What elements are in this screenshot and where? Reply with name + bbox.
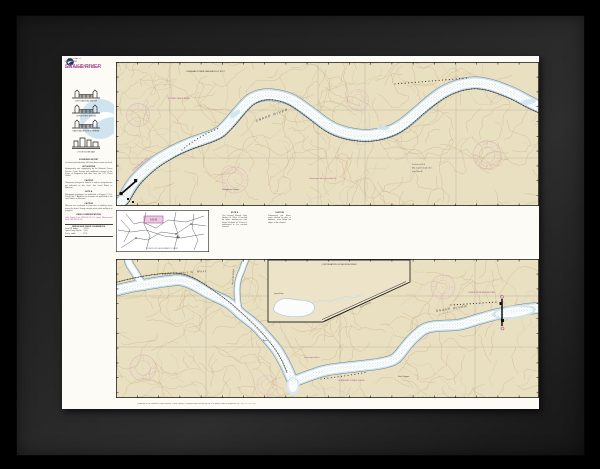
dike-label: Submerged dikes (see Note B) <box>309 177 337 180</box>
index-map-note: LOCATION OF LAKE HERBERT G. WEST <box>146 247 178 250</box>
note-body: Navigation regulations are published in … <box>65 194 112 201</box>
production-note: Produced at the National Ocean Service, … <box>137 403 337 405</box>
note-block: RADIO COMMUNICATIONS Little Goose Lock V… <box>65 214 113 221</box>
clearance-table: BRIDGE AND CABLE CLEARANCES Joso RR brid… <box>65 224 113 238</box>
note-body: at normal pool elevation 540 feet above … <box>65 162 112 164</box>
diagram-caption: LYONS FERRY BRIDGE <box>76 116 97 118</box>
place-label: Ayer <box>263 339 267 342</box>
state-label: WASHINGTON <box>65 61 77 63</box>
panel-bottom-map: CONTINUATION OF PALOUSE RIVER Lyons Ferr… <box>116 259 539 398</box>
ferry-label: Lyons Ferry <box>274 293 284 295</box>
chart-paper: NATIONAL OCEAN SERVICE WASHINGTON SNAKE … <box>62 56 539 409</box>
notes-section: SOUNDINGS IN FEET at normal pool elevati… <box>65 159 113 237</box>
cable-note-label: OVERHEAD POWER CABLE AUTH CL 87 FT <box>186 70 226 73</box>
note-block: SOUNDINGS IN FEET at normal pool elevati… <box>65 159 113 164</box>
inset-lake <box>274 298 315 316</box>
diagram-caption: RAILROAD BRIDGE AT RIPARIA <box>73 130 100 133</box>
title-block: NATIONAL OCEAN SERVICE WASHINGTON SNAKE … <box>64 57 115 307</box>
diagram-caption: LITTLE GOOSE DAM <box>77 151 95 154</box>
mid-note-a: NOTE B The channel through Lake Herbert … <box>222 212 247 229</box>
note-block: AUTHORITIES Hydrography and topography b… <box>65 166 113 178</box>
panel-top-map: OVERHEAD POWER CABLE AUTH CL 87 FT POWER… <box>116 62 539 206</box>
pool-table-line: Min channel depth 14 ft <box>412 166 432 169</box>
table-row: Power cable . . . . . . . 87 ft <box>65 233 112 235</box>
index-map: 18548 LOCATION OF LAKE HERBERT G. WEST <box>116 210 209 252</box>
bridge-symbol <box>72 90 100 98</box>
note-body: Temporary changes or defects in aids to … <box>65 182 112 189</box>
note-block: NOTE A Navigation regulations are publis… <box>65 191 113 201</box>
note-body: Hydrography and topography by the Nation… <box>65 168 112 177</box>
power-cable-label: POWER CABLE AREA <box>168 97 190 100</box>
note-body: Submerged pile dikes, some marked by pil… <box>268 215 291 224</box>
note-body: Little Goose Lock VHF-FM Ch 14. Lower Mo… <box>65 217 112 222</box>
scale-note: SCALE 1:40,000 <box>65 65 111 67</box>
dam-symbol <box>72 138 100 149</box>
cable-label: OVERHEAD POWER CABLE <box>338 379 365 382</box>
note-body: Mariners are cautioned to stay clear of … <box>65 205 112 212</box>
coverage-label: 18548 <box>150 218 158 222</box>
product-photo: NATIONAL OCEAN SERVICE WASHINGTON SNAKE … <box>0 0 600 469</box>
dikes-label: Submerged dikes <box>304 357 320 359</box>
dam-label: LOWER MONUMENTAL DAM <box>468 291 495 294</box>
pool-table-line: (see Note A) <box>412 170 423 173</box>
note-block: CAUTION Temporary changes or defects in … <box>65 180 113 190</box>
inset-title: CONTINUATION OF PALOUSE RIVER <box>322 263 357 266</box>
canyon-label: Burr Canyon <box>398 376 409 378</box>
bridge-diagrams: JOSO RAILROAD BRIDGE LYONS FERRY BRIDGE … <box>66 88 114 158</box>
mid-note-b: CAUTION Submerged pile dikes, some marke… <box>268 212 291 224</box>
canyon-label: Penawawa Canyon <box>222 189 239 191</box>
diagram-caption: JOSO RAILROAD BRIDGE <box>75 100 98 103</box>
note-body: The channel through Lake Herbert G. West… <box>222 215 247 229</box>
pool-table-line: Pool elev 540 ft <box>412 163 426 166</box>
note-block: CAUTION Mariners are cautioned to stay c… <box>65 203 113 213</box>
